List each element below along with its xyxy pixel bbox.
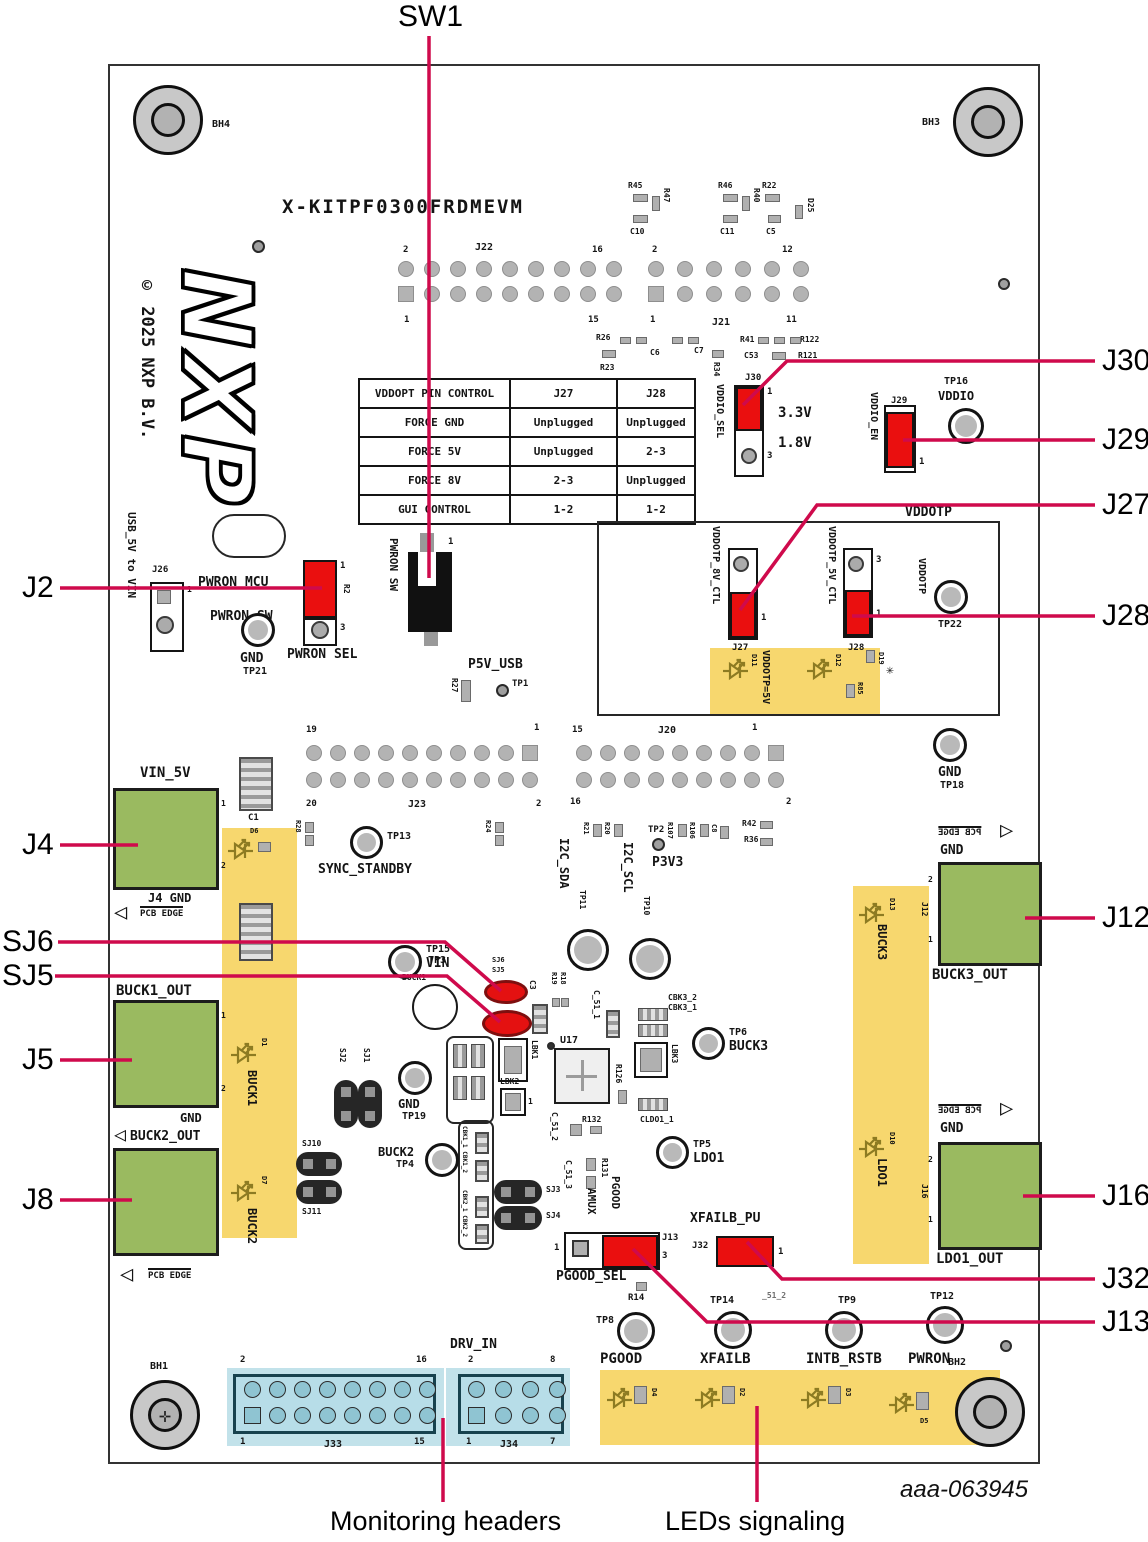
callout-j30: J30 <box>1102 346 1148 376</box>
tp19-label: TP19 <box>402 1112 426 1122</box>
j26-label: J26 <box>152 566 168 575</box>
tp3-ring <box>412 984 458 1030</box>
d2-label: D2 <box>738 1388 745 1396</box>
callout-j4: J4 <box>22 830 54 860</box>
j28-pad <box>848 556 864 572</box>
cldo11-label: CLDO1_1 <box>640 1116 674 1124</box>
smt <box>561 998 569 1007</box>
connector-j16 <box>938 1142 1042 1250</box>
table-cell: 1-2 <box>510 495 617 524</box>
cap <box>453 1076 467 1100</box>
j22-pin2: 2 <box>403 246 408 255</box>
j21-label: J21 <box>712 318 730 328</box>
tp21-label: TP21 <box>243 667 267 677</box>
r27 <box>461 680 471 702</box>
j2-pin3: 3 <box>340 624 345 633</box>
d3-label: D3 <box>844 1388 851 1396</box>
sj4-label: SJ4 <box>546 1212 560 1220</box>
j29-pin1: 1 <box>919 458 924 467</box>
callout-j29: J29 <box>1102 425 1148 455</box>
vddotp-5v-label: VDDOTP=5V <box>760 650 770 704</box>
buck2-led-label: BUCK2 <box>246 1208 258 1244</box>
tp10 <box>629 938 671 980</box>
buck1-out-label: BUCK1_OUT <box>116 984 192 998</box>
j13-pin3: 3 <box>662 1252 667 1261</box>
r45-label: R45 <box>628 182 642 190</box>
tp19 <box>398 1061 432 1095</box>
highlight-right-leds <box>853 886 929 1264</box>
coil-outline <box>212 514 286 558</box>
j30-pin3: 3 <box>767 452 772 461</box>
r41-label: R41 <box>740 336 754 344</box>
tp1 <box>496 684 509 697</box>
led-d10-icon <box>858 1136 888 1160</box>
callout-j2: J2 <box>22 573 54 603</box>
c11-label: C11 <box>720 228 734 236</box>
j4-gnd-label: J4 GND <box>148 892 191 904</box>
p3v3-label: P3V3 <box>652 856 683 869</box>
vddotp-label: VDDOTP <box>905 506 952 519</box>
table-h3: J28 <box>617 379 695 408</box>
j23-pin1: 1 <box>534 724 539 733</box>
buck2-out-label: BUCK2_OUT <box>130 1130 200 1143</box>
callout-sj5: SJ5 <box>2 961 54 991</box>
amux-label: AMUX <box>586 1188 597 1215</box>
callout-j28: J28 <box>1102 601 1148 631</box>
jumper-j13-shunt <box>602 1235 658 1268</box>
d6 <box>258 842 271 852</box>
smt <box>305 822 314 833</box>
callout-j13: J13 <box>1102 1307 1148 1337</box>
c513-label: C_51_3 <box>564 1160 572 1189</box>
cap <box>475 1132 489 1154</box>
d5-label: D5 <box>920 1418 928 1425</box>
cbk32-label: CBK3_2 <box>668 994 697 1002</box>
d2 <box>722 1386 735 1404</box>
j12-pin2: 2 <box>928 876 933 884</box>
j34-pin2: 2 <box>468 1356 473 1365</box>
cap <box>471 1076 485 1100</box>
j5-gnd-label: GND <box>180 1112 202 1124</box>
bh4-label: BH4 <box>212 120 230 130</box>
d19-label: D19 <box>877 652 884 665</box>
nxp-logo: NXP <box>160 268 272 511</box>
j23-pin20: 20 <box>306 800 317 809</box>
cap <box>475 1196 489 1218</box>
smt <box>720 826 729 839</box>
pcb-edge-arrow-right-icon: ▷ <box>1000 820 1013 842</box>
solder-jumper-sj3 <box>494 1180 542 1204</box>
pcb-edge-arrow-left-icon: ◁ <box>114 902 127 924</box>
pgood-label: PGOOD <box>600 1352 642 1366</box>
r26-label: R26 <box>596 334 610 342</box>
callout-sj6: SJ6 <box>2 927 54 957</box>
table-cell: FORCE 5V <box>359 437 510 466</box>
d4-label: D4 <box>650 1388 657 1396</box>
tp4-net-label: BUCK2 <box>378 1146 414 1158</box>
j23-label: J23 <box>408 800 426 810</box>
bh2-label: BH2 <box>948 1358 966 1368</box>
u17-label: U17 <box>560 1036 578 1046</box>
j21-pin12: 12 <box>782 246 793 255</box>
tp5-label: TP5 <box>693 1140 711 1150</box>
j34-pin7: 7 <box>550 1438 555 1447</box>
pcb-edge-text: PCB EDGE <box>938 826 981 838</box>
led-d12-icon <box>806 658 836 682</box>
j28-silk-label: J28 <box>848 644 864 653</box>
c511 <box>606 1010 620 1038</box>
j16-gnd-label: GND <box>940 1122 963 1135</box>
tp2-label: TP2 <box>648 826 664 835</box>
tp14-label: TP14 <box>710 1296 734 1306</box>
d13-label: D13 <box>888 898 895 911</box>
smt <box>602 350 616 358</box>
tp3-net-label: BUCK1 <box>402 974 426 982</box>
led-d13-icon <box>858 902 888 926</box>
tp8 <box>617 1312 655 1350</box>
tp4 <box>425 1143 459 1177</box>
j22-pin1: 1 <box>404 316 409 325</box>
i2c-scl-label: I2C_SCL <box>622 842 634 893</box>
cap <box>471 1044 485 1068</box>
j28-pin1: 1 <box>876 610 881 619</box>
r14-label: R14 <box>628 1294 644 1303</box>
tp13-label: TP13 <box>387 832 411 842</box>
copyright-text: © 2025 NXP B.V. <box>138 276 155 439</box>
d10-label: D10 <box>888 1132 895 1145</box>
tp5 <box>656 1136 689 1169</box>
r22 <box>765 194 780 202</box>
smt <box>593 824 602 837</box>
table-cell: Unplugged <box>510 437 617 466</box>
vddio-sel-label: VDDIO_SEL <box>714 384 724 438</box>
j33-pin15: 15 <box>414 1438 425 1447</box>
d4 <box>634 1386 647 1404</box>
caption-monitoring-headers: Monitoring headers <box>330 1508 561 1535</box>
tp10-label: TP10 <box>642 896 650 915</box>
j33-pin1: 1 <box>240 1438 245 1447</box>
c512-label: C_51_2 <box>550 1112 558 1141</box>
smt <box>552 998 560 1007</box>
r28-label: R28 <box>294 820 301 833</box>
cap <box>475 1224 489 1244</box>
pcb-edge-arrow-left-icon: ◁ <box>114 1124 126 1144</box>
tp21-gnd-label: GND <box>240 652 263 665</box>
j22-label: J22 <box>475 243 493 253</box>
smt <box>758 337 769 344</box>
smt <box>305 835 314 846</box>
j20-pin15: 15 <box>572 726 583 735</box>
connector-j12 <box>938 862 1042 966</box>
j20-pin2: 2 <box>786 798 791 807</box>
smt <box>586 1158 596 1171</box>
connector-j8 <box>113 1148 219 1256</box>
tp3-label: TP3 <box>428 956 446 966</box>
d25 <box>795 205 803 219</box>
c511-label: C_51_1 <box>592 990 600 1019</box>
mount-hole-bh2-inner <box>973 1395 1007 1429</box>
j13-pin1: 1 <box>554 1244 559 1253</box>
r106-label: R106 <box>688 822 695 839</box>
j5-pin2: 2 <box>221 1085 226 1093</box>
vddio-1v8-label: 1.8V <box>778 436 812 450</box>
mount-hole-bh4-inner <box>151 103 185 137</box>
xfailb-label: XFAILB <box>700 1352 751 1366</box>
r47-label: R47 <box>662 188 670 202</box>
j21-pin11: 11 <box>786 316 797 325</box>
sj3-label: SJ3 <box>546 1186 560 1194</box>
r131-label: R131 <box>600 1158 608 1177</box>
ldo1-out-label: LDO1_OUT <box>936 1252 1003 1266</box>
tp6-label: TP6 <box>729 1028 747 1038</box>
vddotp-8v-ctl-label: VDDOTP_8V_CTL <box>710 526 720 604</box>
r19-label: R19 <box>550 972 557 985</box>
jumper-j30-shunt <box>736 387 762 431</box>
tp18-label: TP18 <box>940 781 964 791</box>
j22-pin15: 15 <box>588 316 599 325</box>
d5 <box>916 1392 929 1410</box>
sync-standby-label: SYNC_STANDBY <box>318 863 412 876</box>
u17-pin1-dot <box>547 1042 555 1050</box>
c10-label: C10 <box>630 228 644 236</box>
lbk3-core <box>640 1048 662 1072</box>
tp14 <box>714 1311 752 1349</box>
j27-pin1: 1 <box>761 614 766 623</box>
table-h2: J27 <box>510 379 617 408</box>
tp19-gnd-label: GND <box>398 1098 420 1110</box>
jumper-j28-shunt <box>845 590 871 636</box>
ldo1-led-label: LDO1 <box>876 1158 888 1187</box>
pcb-edge-arrow-right-icon: ▷ <box>1000 1098 1013 1120</box>
r22-label: R22 <box>762 182 776 190</box>
led-d2-icon <box>694 1387 724 1411</box>
j30-pad <box>741 448 757 464</box>
r20-label: R20 <box>603 822 610 835</box>
lbk1-label: LBK1 <box>530 1040 538 1059</box>
r21-label: R21 <box>582 822 589 835</box>
xfailb-pu-label: XFAILB_PU <box>690 1212 760 1225</box>
r14 <box>636 1282 647 1291</box>
d6-label: D6 <box>250 828 258 835</box>
vddopt-table: VDDOPT PIN CONTROL J27 J28 FORCE GND Unp… <box>358 378 696 525</box>
r107-label: R107 <box>666 822 673 839</box>
c512-partial-label: _51_2 <box>762 1292 786 1300</box>
r132-label: R132 <box>582 1116 601 1124</box>
mount-hole-bh1-inner: ✛ <box>148 1398 182 1432</box>
tp6-net-label: BUCK3 <box>729 1040 768 1053</box>
c5-label: C5 <box>766 228 776 236</box>
tp11-label: TP11 <box>578 890 586 909</box>
callout-j5: J5 <box>22 1045 54 1075</box>
j32-silk-label: J32 <box>692 1242 708 1251</box>
lbk1-core <box>504 1046 522 1074</box>
table-cell: Unplugged <box>617 466 695 495</box>
r46-label: R46 <box>718 182 732 190</box>
smt <box>636 337 647 344</box>
tp16-label: TP16 <box>944 377 968 387</box>
j27-pad <box>733 556 749 572</box>
table-cell: Unplugged <box>617 408 695 437</box>
cbk2-labels: CBK2_1 CBK2_2 <box>461 1190 467 1237</box>
caption-leds-signaling: LEDs signaling <box>665 1508 845 1535</box>
cbk31-label: CBK3_1 <box>668 1004 697 1012</box>
tp6 <box>692 1027 725 1060</box>
sj6-silk-label: SJ6 <box>492 957 505 964</box>
connector-j5 <box>113 1000 219 1108</box>
cap <box>638 1024 668 1037</box>
tp11 <box>567 929 609 971</box>
jumper-j2-shunt <box>303 560 337 618</box>
sw1-pin1: 1 <box>448 538 453 547</box>
i2c-sda-label: I2C_SDA <box>558 838 570 889</box>
j33-pin2: 2 <box>240 1356 245 1365</box>
pcb-edge-text: PCB EDGE <box>938 1104 981 1116</box>
star-icon: ✳ <box>886 664 894 677</box>
j13-pad1 <box>572 1240 589 1257</box>
j26-pin1: 1 <box>187 586 192 594</box>
lbk3-label: LBK3 <box>670 1044 678 1063</box>
vin5v-label: VIN_5V <box>140 766 191 780</box>
j12-pin1: 1 <box>928 936 933 944</box>
figure-id: aaa-063945 <box>900 1476 1028 1504</box>
j21-pin1: 1 <box>650 316 655 325</box>
c5 <box>768 215 781 223</box>
tp12 <box>926 1306 964 1344</box>
callout-j12: J12 <box>1102 903 1148 933</box>
sw1-tab-top <box>420 533 434 552</box>
r122-label: R122 <box>800 336 819 344</box>
r40-label: R40 <box>752 188 760 202</box>
sj2-label: SJ2 <box>338 1048 346 1062</box>
vddio-label: VDDIO <box>938 390 974 402</box>
c1 <box>239 757 273 811</box>
j34-pin8: 8 <box>550 1356 555 1365</box>
tp9 <box>825 1311 863 1349</box>
table-cell: 2-3 <box>617 437 695 466</box>
j20-label: J20 <box>658 726 676 736</box>
j30-pin1: 1 <box>767 388 772 397</box>
j23-pin19: 19 <box>306 726 317 735</box>
tp22-label: TP22 <box>938 620 962 630</box>
j30-silk-label: J30 <box>745 374 761 383</box>
callout-j16: J16 <box>1102 1181 1148 1211</box>
j33-pin16: 16 <box>416 1356 427 1365</box>
callout-sw1: SW1 <box>398 2 463 32</box>
intb-rstb-label: INTB_RSTB <box>806 1352 882 1366</box>
smt <box>700 824 709 837</box>
tp13 <box>350 826 383 859</box>
solder-jumper-sj11 <box>296 1180 342 1204</box>
c6-label: C6 <box>650 349 660 357</box>
d19 <box>866 650 875 663</box>
jumper-j27-shunt <box>730 592 756 638</box>
via-dot <box>998 278 1010 290</box>
r121-label: R121 <box>798 352 817 360</box>
solder-jumper-sj1 <box>358 1080 382 1128</box>
tp21 <box>241 613 275 647</box>
pcb-edge-marker-right: PCB EDGE <box>938 826 981 838</box>
tp1-label: TP1 <box>512 680 528 689</box>
j16-pin1: 1 <box>928 1216 933 1224</box>
callout-j27: J27 <box>1102 490 1148 520</box>
smt <box>618 1090 627 1104</box>
pwron-mcu-label: PWRON_MCU <box>198 576 268 589</box>
u17-chip <box>554 1048 610 1104</box>
j12-silk-label: J12 <box>920 902 928 916</box>
cap <box>638 1008 668 1021</box>
r46 <box>723 194 738 202</box>
buck3-out-label: BUCK3_OUT <box>932 968 1008 982</box>
j4-pin2: 2 <box>221 862 226 870</box>
led-d4-icon <box>606 1387 636 1411</box>
cap <box>453 1044 467 1068</box>
j34-pin1: 1 <box>466 1438 471 1447</box>
j13-silk-label: J13 <box>662 1234 678 1243</box>
led-d5-icon <box>888 1392 918 1416</box>
pwron-sw-vertical-label: PWRON SW <box>388 538 399 591</box>
c8-label: C8 <box>710 824 717 832</box>
sj5-silk-label: SJ5 <box>492 967 505 974</box>
pgood-sel-label: PGOOD_SEL <box>556 1270 626 1283</box>
c2 <box>239 903 273 961</box>
table-cell: GUI CONTROL <box>359 495 510 524</box>
d12-label: D12 <box>834 654 841 667</box>
table-h1: VDDOPT PIN CONTROL <box>359 379 510 408</box>
sj1-label: SJ1 <box>362 1048 370 1062</box>
smt <box>688 337 699 344</box>
jumper-j29-shunt <box>886 412 914 468</box>
j16-silk-label: J16 <box>920 1184 928 1198</box>
d11-label: D11 <box>750 654 757 667</box>
smt <box>712 350 724 358</box>
d7-label: D7 <box>260 1176 267 1184</box>
sw1-tab-bottom <box>424 632 438 646</box>
d3 <box>828 1386 841 1404</box>
j2-pin1: 1 <box>340 562 345 571</box>
c53-label: C53 <box>744 352 758 360</box>
smt <box>620 337 631 344</box>
pcb-edge-marker: PCB EDGE <box>148 1272 191 1281</box>
board-title: X-KITPF0300FRDMEVM <box>282 198 524 217</box>
c7-label: C7 <box>694 347 704 355</box>
jumper-j32-shunt <box>716 1236 774 1267</box>
led-d1-icon <box>230 1042 260 1066</box>
r2-label: R2 <box>342 584 350 594</box>
j16-pin2: 2 <box>928 1156 933 1164</box>
led-d11-icon <box>722 658 752 682</box>
sw1-actuator <box>418 552 436 586</box>
smt <box>760 838 773 846</box>
j28-pin3: 3 <box>876 556 881 565</box>
pwron-label: PWRON <box>908 1352 950 1366</box>
drv-in-label: DRV_IN <box>450 1338 497 1351</box>
r85 <box>846 684 855 698</box>
smt <box>790 337 801 344</box>
buck3-led-label: BUCK3 <box>876 924 888 960</box>
cap <box>638 1098 668 1111</box>
j26-pad2 <box>156 616 174 634</box>
pcb-edge-marker-right: PCB EDGE <box>938 1104 981 1116</box>
pcb-diagram: © 2025 NXP B.V. NXP X-KITPF0300FRDMEVM B… <box>0 0 1148 1542</box>
j12-gnd-label: GND <box>940 844 963 857</box>
j20-pin16: 16 <box>570 798 581 807</box>
solder-jumper-sj4 <box>494 1206 542 1230</box>
pwron-sel-label: PWRON SEL <box>287 648 357 661</box>
tp12-label: TP12 <box>930 1292 954 1302</box>
r27-label: R27 <box>450 678 458 692</box>
smt <box>590 1126 602 1134</box>
table-cell: FORCE GND <box>359 408 510 437</box>
